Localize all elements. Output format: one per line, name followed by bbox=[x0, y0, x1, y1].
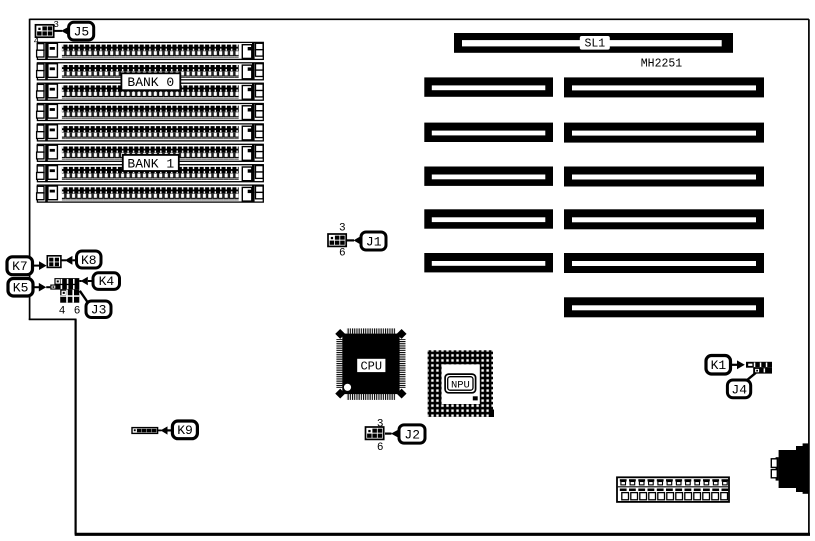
svg-text:K4: K4 bbox=[99, 274, 115, 289]
svg-text:K5: K5 bbox=[13, 280, 29, 295]
svg-text:6: 6 bbox=[377, 442, 384, 454]
svg-text:SL1: SL1 bbox=[584, 38, 605, 51]
svg-text:BANK 0: BANK 0 bbox=[127, 75, 174, 90]
svg-text:J4: J4 bbox=[731, 382, 747, 397]
svg-text:J5: J5 bbox=[74, 25, 90, 40]
svg-text:3: 3 bbox=[53, 20, 58, 30]
svg-text:6: 6 bbox=[74, 306, 81, 318]
svg-text:J2: J2 bbox=[404, 427, 420, 442]
svg-text:6: 6 bbox=[339, 248, 346, 260]
svg-text:MH2251: MH2251 bbox=[641, 58, 683, 71]
svg-text:BANK 1: BANK 1 bbox=[127, 156, 174, 171]
svg-text:K8: K8 bbox=[81, 253, 97, 268]
svg-text:J1: J1 bbox=[366, 234, 382, 249]
svg-text:3: 3 bbox=[377, 418, 384, 430]
svg-text:CPU: CPU bbox=[360, 360, 382, 374]
svg-text:3: 3 bbox=[339, 223, 346, 235]
svg-text:J3: J3 bbox=[91, 302, 107, 317]
svg-text:4: 4 bbox=[59, 306, 66, 318]
svg-text:NPU: NPU bbox=[451, 379, 470, 391]
svg-text:K9: K9 bbox=[177, 423, 193, 438]
svg-text:K7: K7 bbox=[12, 259, 28, 274]
svg-text:K1: K1 bbox=[711, 358, 727, 373]
